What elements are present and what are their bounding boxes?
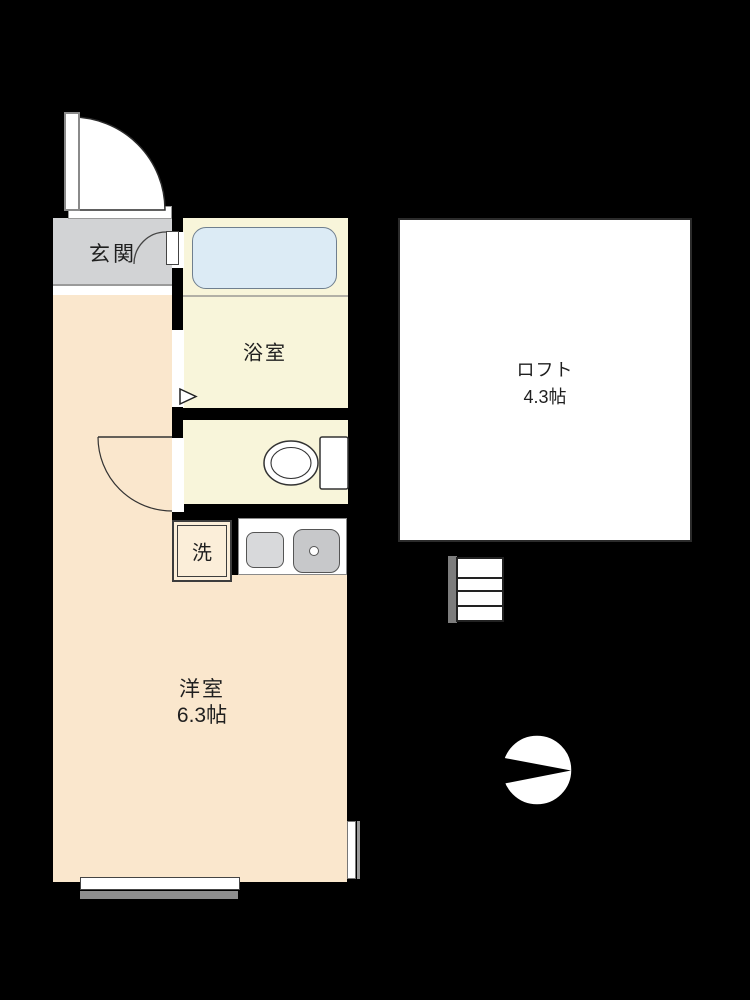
stove-burner-icon (309, 546, 319, 556)
staircase-icon (456, 557, 504, 622)
floor-plan: 玄関 浴室 ロフト 4.3帖 洋室 6.3帖 洗 (0, 0, 750, 1000)
loft-size: 4.3帖 (523, 383, 566, 409)
bathtub-icon (192, 227, 337, 289)
bathroom-label: 浴室 (243, 337, 287, 366)
entrance-door-swing-icon (65, 113, 165, 210)
window-bottom (80, 877, 240, 890)
entrance-threshold (68, 206, 172, 219)
balcony-strip (80, 891, 238, 899)
genkan-door-leaf (166, 231, 179, 265)
western-room-size: 6.3帖 (177, 699, 227, 729)
toilet-room-floor (183, 420, 348, 504)
laundry-label: 洗 (192, 537, 212, 566)
stair-step-line (458, 590, 502, 592)
genkan-label: 玄関 (89, 238, 137, 268)
toilet-door-opening (172, 438, 184, 512)
window-right-rail (357, 821, 360, 879)
stair-step-line (458, 605, 502, 607)
bathroom-door-opening (172, 330, 184, 407)
window-right (347, 821, 356, 879)
north-arrow-icon (502, 758, 571, 785)
kitchen-sink-icon (246, 532, 284, 568)
loft-label: ロフト (517, 356, 574, 382)
stair-step-line (458, 577, 502, 579)
compass (501, 734, 573, 806)
